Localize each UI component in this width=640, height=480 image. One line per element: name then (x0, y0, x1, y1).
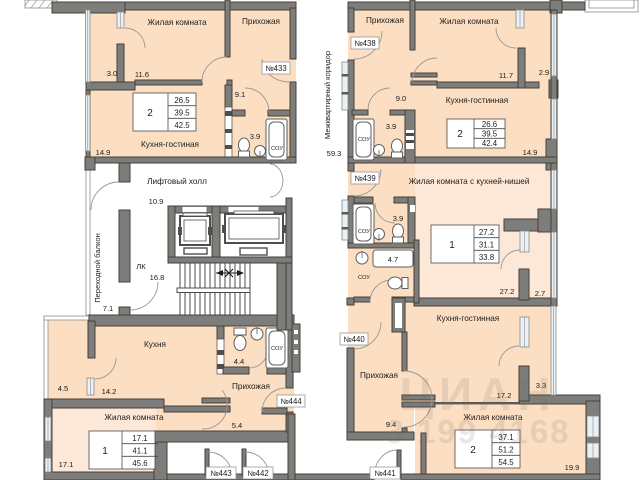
svg-text:СОУ: СОУ (271, 346, 283, 352)
svg-text:Жилая комната: Жилая комната (104, 413, 164, 422)
svg-text:4.5: 4.5 (58, 384, 69, 393)
svg-text:Кухня-гостинная: Кухня-гостинная (437, 314, 499, 323)
svg-text:№444: №444 (280, 397, 302, 406)
svg-text:11.6: 11.6 (135, 70, 149, 79)
svg-text:39.5: 39.5 (482, 130, 498, 139)
svg-text:39.5: 39.5 (174, 109, 190, 118)
svg-text:Прихожая: Прихожая (242, 17, 280, 26)
svg-text:СОУ: СОУ (358, 137, 370, 143)
svg-text:27.2: 27.2 (500, 287, 515, 296)
svg-text:10.9: 10.9 (149, 197, 164, 206)
svg-text:№441: №441 (374, 469, 395, 478)
svg-text:№433: №433 (265, 64, 286, 73)
svg-text:59.3: 59.3 (327, 149, 342, 158)
svg-text:14.9: 14.9 (96, 148, 111, 157)
svg-text:Жилая комната с кухней-нишей: Жилая комната с кухней-нишей (409, 177, 530, 186)
svg-text:7.1: 7.1 (103, 304, 114, 313)
svg-text:СОУ: СОУ (358, 275, 370, 281)
svg-text:33.8: 33.8 (479, 253, 494, 262)
svg-text:Кухня-гостиная: Кухня-гостиная (141, 140, 199, 149)
svg-text:14.2: 14.2 (102, 387, 117, 396)
svg-text:42.5: 42.5 (174, 121, 190, 130)
svg-text:2.9: 2.9 (539, 68, 550, 77)
svg-text:3 199 4168: 3 199 4168 (385, 413, 570, 450)
svg-text:5.4: 5.4 (232, 421, 243, 430)
svg-text:Лифтовый холл: Лифтовый холл (147, 177, 207, 186)
svg-text:№439: №439 (354, 174, 375, 183)
svg-text:Прихожая: Прихожая (360, 371, 398, 380)
svg-text:17.1: 17.1 (59, 460, 74, 469)
svg-text:3.0: 3.0 (107, 69, 118, 78)
svg-text:4.4: 4.4 (234, 357, 245, 366)
svg-text:3.9: 3.9 (386, 122, 397, 131)
svg-text:Кухня-гостинная: Кухня-гостинная (446, 96, 508, 105)
svg-text:Переходной балкон: Переходной балкон (93, 233, 102, 303)
svg-text:Жилая комната: Жилая комната (439, 17, 499, 26)
svg-text:9.0: 9.0 (396, 94, 407, 103)
svg-text:№443: №443 (210, 469, 231, 478)
svg-text:№438: №438 (354, 39, 375, 48)
svg-text:9.1: 9.1 (235, 90, 246, 99)
svg-text:42.4: 42.4 (482, 139, 498, 148)
svg-text:2.7: 2.7 (535, 289, 546, 298)
svg-text:27.2: 27.2 (479, 228, 494, 237)
svg-text:2: 2 (457, 129, 463, 140)
svg-text:ЛК: ЛК (136, 262, 146, 271)
svg-text:Прихожая: Прихожая (366, 16, 404, 25)
svg-text:№442: №442 (247, 469, 268, 478)
svg-text:26.5: 26.5 (174, 96, 190, 105)
svg-text:1: 1 (102, 446, 108, 457)
svg-text:СОУ: СОУ (271, 146, 283, 152)
svg-text:45.6: 45.6 (132, 459, 147, 468)
svg-text:Кухня: Кухня (144, 340, 166, 349)
svg-text:14.9: 14.9 (523, 148, 538, 157)
svg-text:31.1: 31.1 (479, 241, 494, 250)
svg-text:26.6: 26.6 (482, 120, 497, 129)
svg-text:№440: №440 (343, 335, 365, 344)
svg-text:СОУ: СОУ (358, 229, 370, 235)
svg-text:4.7: 4.7 (388, 255, 399, 264)
svg-text:54.5: 54.5 (498, 458, 514, 467)
svg-text:11.7: 11.7 (499, 71, 513, 80)
svg-text:16.8: 16.8 (150, 273, 165, 282)
svg-text:19.9: 19.9 (565, 463, 580, 472)
svg-text:1: 1 (449, 240, 455, 251)
svg-text:3.9: 3.9 (393, 214, 404, 223)
svg-text:2: 2 (147, 108, 153, 119)
svg-text:Межквартирный коридор: Межквартирный коридор (323, 51, 332, 139)
svg-text:17.1: 17.1 (132, 434, 147, 443)
svg-text:41.1: 41.1 (132, 447, 147, 456)
svg-text:3.9: 3.9 (250, 132, 261, 141)
svg-text:Прихожая: Прихожая (232, 382, 270, 391)
svg-text:Жилая комната: Жилая комната (147, 18, 207, 27)
